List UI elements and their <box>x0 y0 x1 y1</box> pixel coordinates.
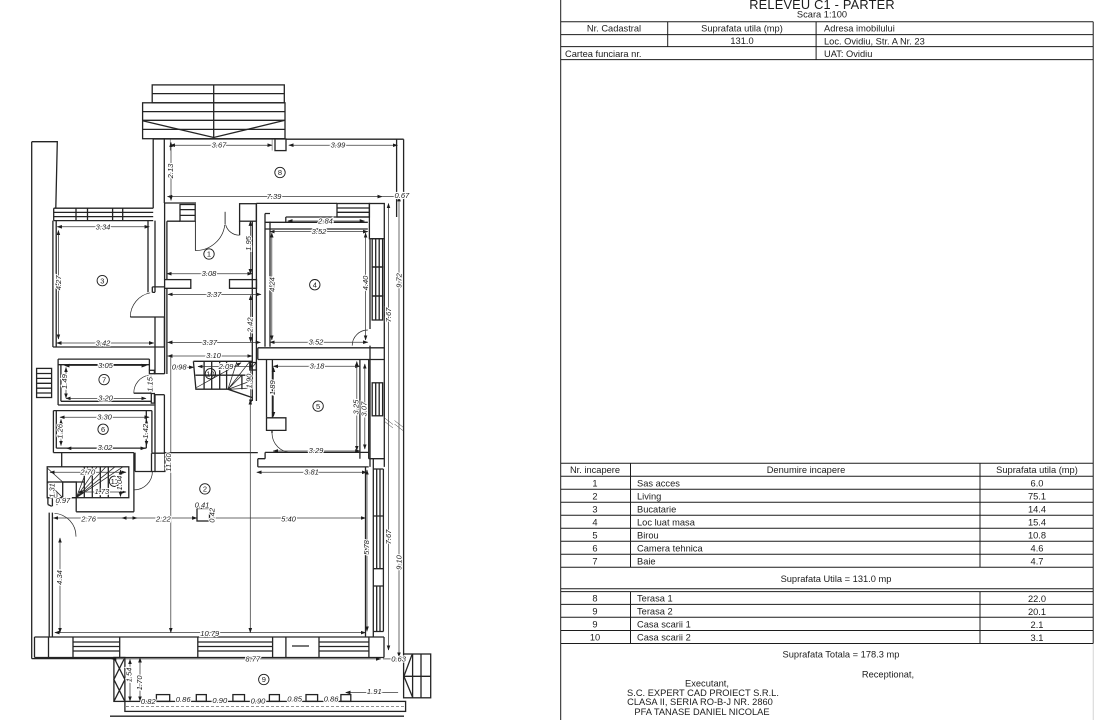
svg-text:1: 1 <box>592 478 597 488</box>
svg-text:3.02: 3.02 <box>98 443 114 452</box>
svg-text:0.85: 0.85 <box>287 695 303 704</box>
svg-text:8.77: 8.77 <box>245 654 261 663</box>
svg-text:9.72: 9.72 <box>395 272 404 288</box>
svg-text:3.34: 3.34 <box>96 222 111 231</box>
svg-text:3.30: 3.30 <box>97 412 113 421</box>
svg-text:1.49: 1.49 <box>60 373 69 389</box>
svg-text:7: 7 <box>102 375 106 384</box>
svg-text:4.34: 4.34 <box>55 570 64 585</box>
svg-text:Adresa imobilului: Adresa imobilului <box>824 24 895 34</box>
svg-text:75.1: 75.1 <box>1028 492 1046 502</box>
svg-text:2.76: 2.76 <box>80 514 97 523</box>
svg-text:CLASA II, SERIA RO-B-J NR. 286: CLASA II, SERIA RO-B-J NR. 2860 <box>627 697 773 707</box>
svg-text:Loc luat masa: Loc luat masa <box>637 517 696 527</box>
svg-text:1.26: 1.26 <box>56 423 65 439</box>
svg-text:Terasa 1: Terasa 1 <box>637 594 673 604</box>
svg-text:7.67: 7.67 <box>384 307 393 323</box>
svg-text:3.81: 3.81 <box>304 467 319 476</box>
svg-text:3: 3 <box>592 504 597 514</box>
svg-text:1.15: 1.15 <box>146 376 155 392</box>
svg-text:2: 2 <box>203 485 207 494</box>
svg-text:3.52: 3.52 <box>312 227 328 236</box>
svg-text:11.60: 11.60 <box>164 453 173 472</box>
svg-text:4.6: 4.6 <box>1031 544 1044 554</box>
svg-text:3.42: 3.42 <box>96 338 112 347</box>
svg-text:1.42: 1.42 <box>141 423 150 439</box>
svg-text:20.1: 20.1 <box>1028 607 1046 617</box>
svg-text:UAT: Ovidiu: UAT: Ovidiu <box>824 49 872 59</box>
svg-text:2.22: 2.22 <box>155 514 172 523</box>
svg-text:4: 4 <box>592 517 597 527</box>
svg-text:Nr. incapere: Nr. incapere <box>570 465 620 475</box>
svg-text:Suprafata utila (mp): Suprafata utila (mp) <box>996 465 1078 475</box>
svg-text:1.54: 1.54 <box>125 668 134 683</box>
svg-text:0.97: 0.97 <box>56 496 72 505</box>
svg-text:3.37: 3.37 <box>202 338 218 347</box>
svg-text:10: 10 <box>206 370 214 379</box>
svg-text:Terasa 2: Terasa 2 <box>637 607 673 617</box>
svg-text:7.67: 7.67 <box>384 529 393 545</box>
svg-text:Sas acces: Sas acces <box>637 478 680 488</box>
svg-text:4.7: 4.7 <box>1031 557 1044 567</box>
svg-text:4: 4 <box>313 280 317 289</box>
svg-text:3.52: 3.52 <box>309 338 325 347</box>
svg-text:Nr. Cadastral: Nr. Cadastral <box>587 24 641 34</box>
svg-text:2.84: 2.84 <box>317 217 333 226</box>
svg-text:Casa scarii 1: Casa scarii 1 <box>637 620 691 630</box>
svg-text:8: 8 <box>278 168 282 177</box>
svg-text:Scara 1:100: Scara 1:100 <box>797 10 847 20</box>
svg-text:7: 7 <box>592 556 597 566</box>
svg-text:2.42: 2.42 <box>245 317 254 334</box>
svg-text:0.42: 0.42 <box>207 507 216 523</box>
svg-text:2.1: 2.1 <box>1031 620 1044 630</box>
svg-text:4.40: 4.40 <box>361 275 370 291</box>
svg-text:1.89: 1.89 <box>268 380 277 396</box>
svg-text:Suprafata Totala = 178.3 mp: Suprafata Totala = 178.3 mp <box>783 649 900 659</box>
svg-text:131.0: 131.0 <box>730 36 753 46</box>
svg-text:Bucatarie: Bucatarie <box>637 504 676 514</box>
svg-text:Loc. Ovidiu, Str. A Nr. 23: Loc. Ovidiu, Str. A Nr. 23 <box>824 37 925 47</box>
svg-text:8: 8 <box>592 594 597 604</box>
svg-text:3.18: 3.18 <box>310 361 326 370</box>
svg-text:3.37: 3.37 <box>207 290 223 299</box>
svg-text:Suprafata utila (mp): Suprafata utila (mp) <box>701 24 783 34</box>
svg-text:1.04: 1.04 <box>115 476 124 491</box>
svg-text:6: 6 <box>101 425 105 434</box>
svg-text:3.08: 3.08 <box>202 269 218 278</box>
svg-text:9.10: 9.10 <box>395 554 404 570</box>
svg-text:14.4: 14.4 <box>1028 505 1046 515</box>
svg-text:2: 2 <box>592 491 597 501</box>
svg-text:9: 9 <box>592 607 597 617</box>
svg-text:0.90: 0.90 <box>251 697 267 706</box>
svg-text:3.10: 3.10 <box>206 351 222 360</box>
svg-text:0.63: 0.63 <box>391 654 407 663</box>
svg-text:Baie: Baie <box>637 556 656 566</box>
svg-text:3: 3 <box>100 276 104 285</box>
svg-text:Receptionat,: Receptionat, <box>862 670 914 680</box>
svg-text:1.31: 1.31 <box>48 483 57 498</box>
svg-text:Camera tehnica: Camera tehnica <box>637 543 703 553</box>
svg-text:2.70: 2.70 <box>79 467 96 476</box>
svg-text:Cartea funciara nr.: Cartea funciara nr. <box>565 49 641 59</box>
svg-text:10: 10 <box>590 633 600 643</box>
svg-text:10.79: 10.79 <box>200 629 220 638</box>
svg-text:Denumire incapere: Denumire incapere <box>767 465 846 475</box>
svg-text:15.4: 15.4 <box>1028 518 1046 528</box>
svg-text:Casa scarii 2: Casa scarii 2 <box>637 633 691 643</box>
svg-text:0.86: 0.86 <box>324 695 340 704</box>
svg-text:5.40: 5.40 <box>281 514 297 523</box>
svg-text:1.91: 1.91 <box>367 687 382 696</box>
svg-text:1.95: 1.95 <box>244 235 253 251</box>
svg-text:3.99: 3.99 <box>331 141 347 150</box>
svg-text:1.70: 1.70 <box>135 675 144 691</box>
svg-text:PFA TANASE DANIEL NICOLAE: PFA TANASE DANIEL NICOLAE <box>634 707 769 717</box>
svg-text:0.86: 0.86 <box>176 695 192 704</box>
svg-text:3.20: 3.20 <box>98 393 114 402</box>
svg-text:0.67: 0.67 <box>395 191 411 200</box>
svg-text:6.0: 6.0 <box>1031 479 1044 489</box>
svg-text:Suprafata Utila = 131.0 mp: Suprafata Utila = 131.0 mp <box>781 574 892 584</box>
svg-text:1: 1 <box>207 250 211 259</box>
svg-text:3.1: 3.1 <box>1031 633 1044 643</box>
svg-text:0.82: 0.82 <box>141 697 157 706</box>
svg-text:22.0: 22.0 <box>1028 594 1046 604</box>
svg-text:10.8: 10.8 <box>1028 531 1046 541</box>
svg-text:3.29: 3.29 <box>309 446 325 455</box>
svg-text:1.73: 1.73 <box>95 487 111 496</box>
svg-text:2.09: 2.09 <box>218 362 235 371</box>
svg-text:Living: Living <box>637 491 661 501</box>
svg-text:4.24: 4.24 <box>267 277 276 292</box>
svg-text:5: 5 <box>316 402 320 411</box>
svg-text:Birou: Birou <box>637 530 659 540</box>
svg-text:1.90: 1.90 <box>245 373 254 389</box>
svg-text:4.27: 4.27 <box>54 275 63 291</box>
svg-text:9: 9 <box>262 675 266 684</box>
svg-text:3.05: 3.05 <box>98 361 114 370</box>
svg-text:5.78: 5.78 <box>362 539 371 555</box>
svg-text:7.39: 7.39 <box>267 192 283 201</box>
svg-text:3.07: 3.07 <box>360 401 369 417</box>
svg-text:0.90: 0.90 <box>212 696 228 705</box>
svg-text:9: 9 <box>592 620 597 630</box>
svg-text:3.67: 3.67 <box>212 141 228 150</box>
svg-text:5: 5 <box>592 530 597 540</box>
svg-text:0.98: 0.98 <box>172 363 188 372</box>
svg-text:6: 6 <box>592 543 597 553</box>
svg-text:2.13: 2.13 <box>166 163 175 180</box>
